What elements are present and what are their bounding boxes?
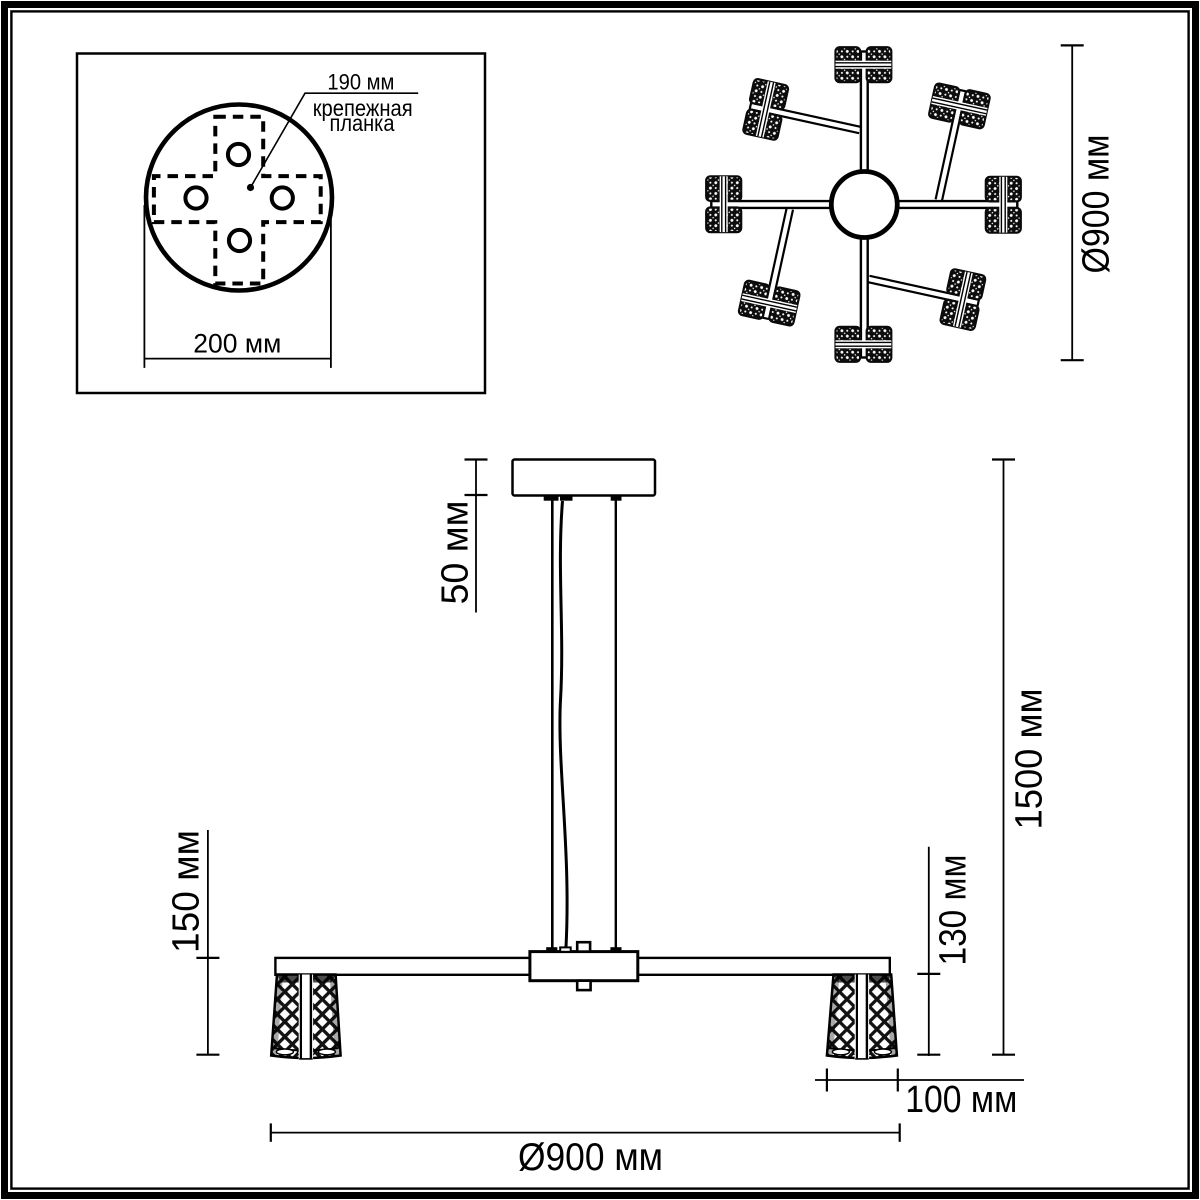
svg-text:130 мм: 130 мм (932, 855, 974, 966)
svg-text:1500 мм: 1500 мм (1009, 689, 1051, 830)
svg-text:Ø900 мм: Ø900 мм (518, 1136, 663, 1179)
svg-text:200 мм: 200 мм (193, 328, 281, 358)
svg-text:190 мм: 190 мм (327, 69, 394, 94)
svg-text:150 мм: 150 мм (166, 830, 208, 953)
svg-text:Ø900 мм: Ø900 мм (1076, 135, 1118, 274)
svg-text:100 мм: 100 мм (905, 1079, 1017, 1121)
svg-text:50 мм: 50 мм (435, 501, 477, 605)
svg-text:планка: планка (330, 110, 395, 136)
